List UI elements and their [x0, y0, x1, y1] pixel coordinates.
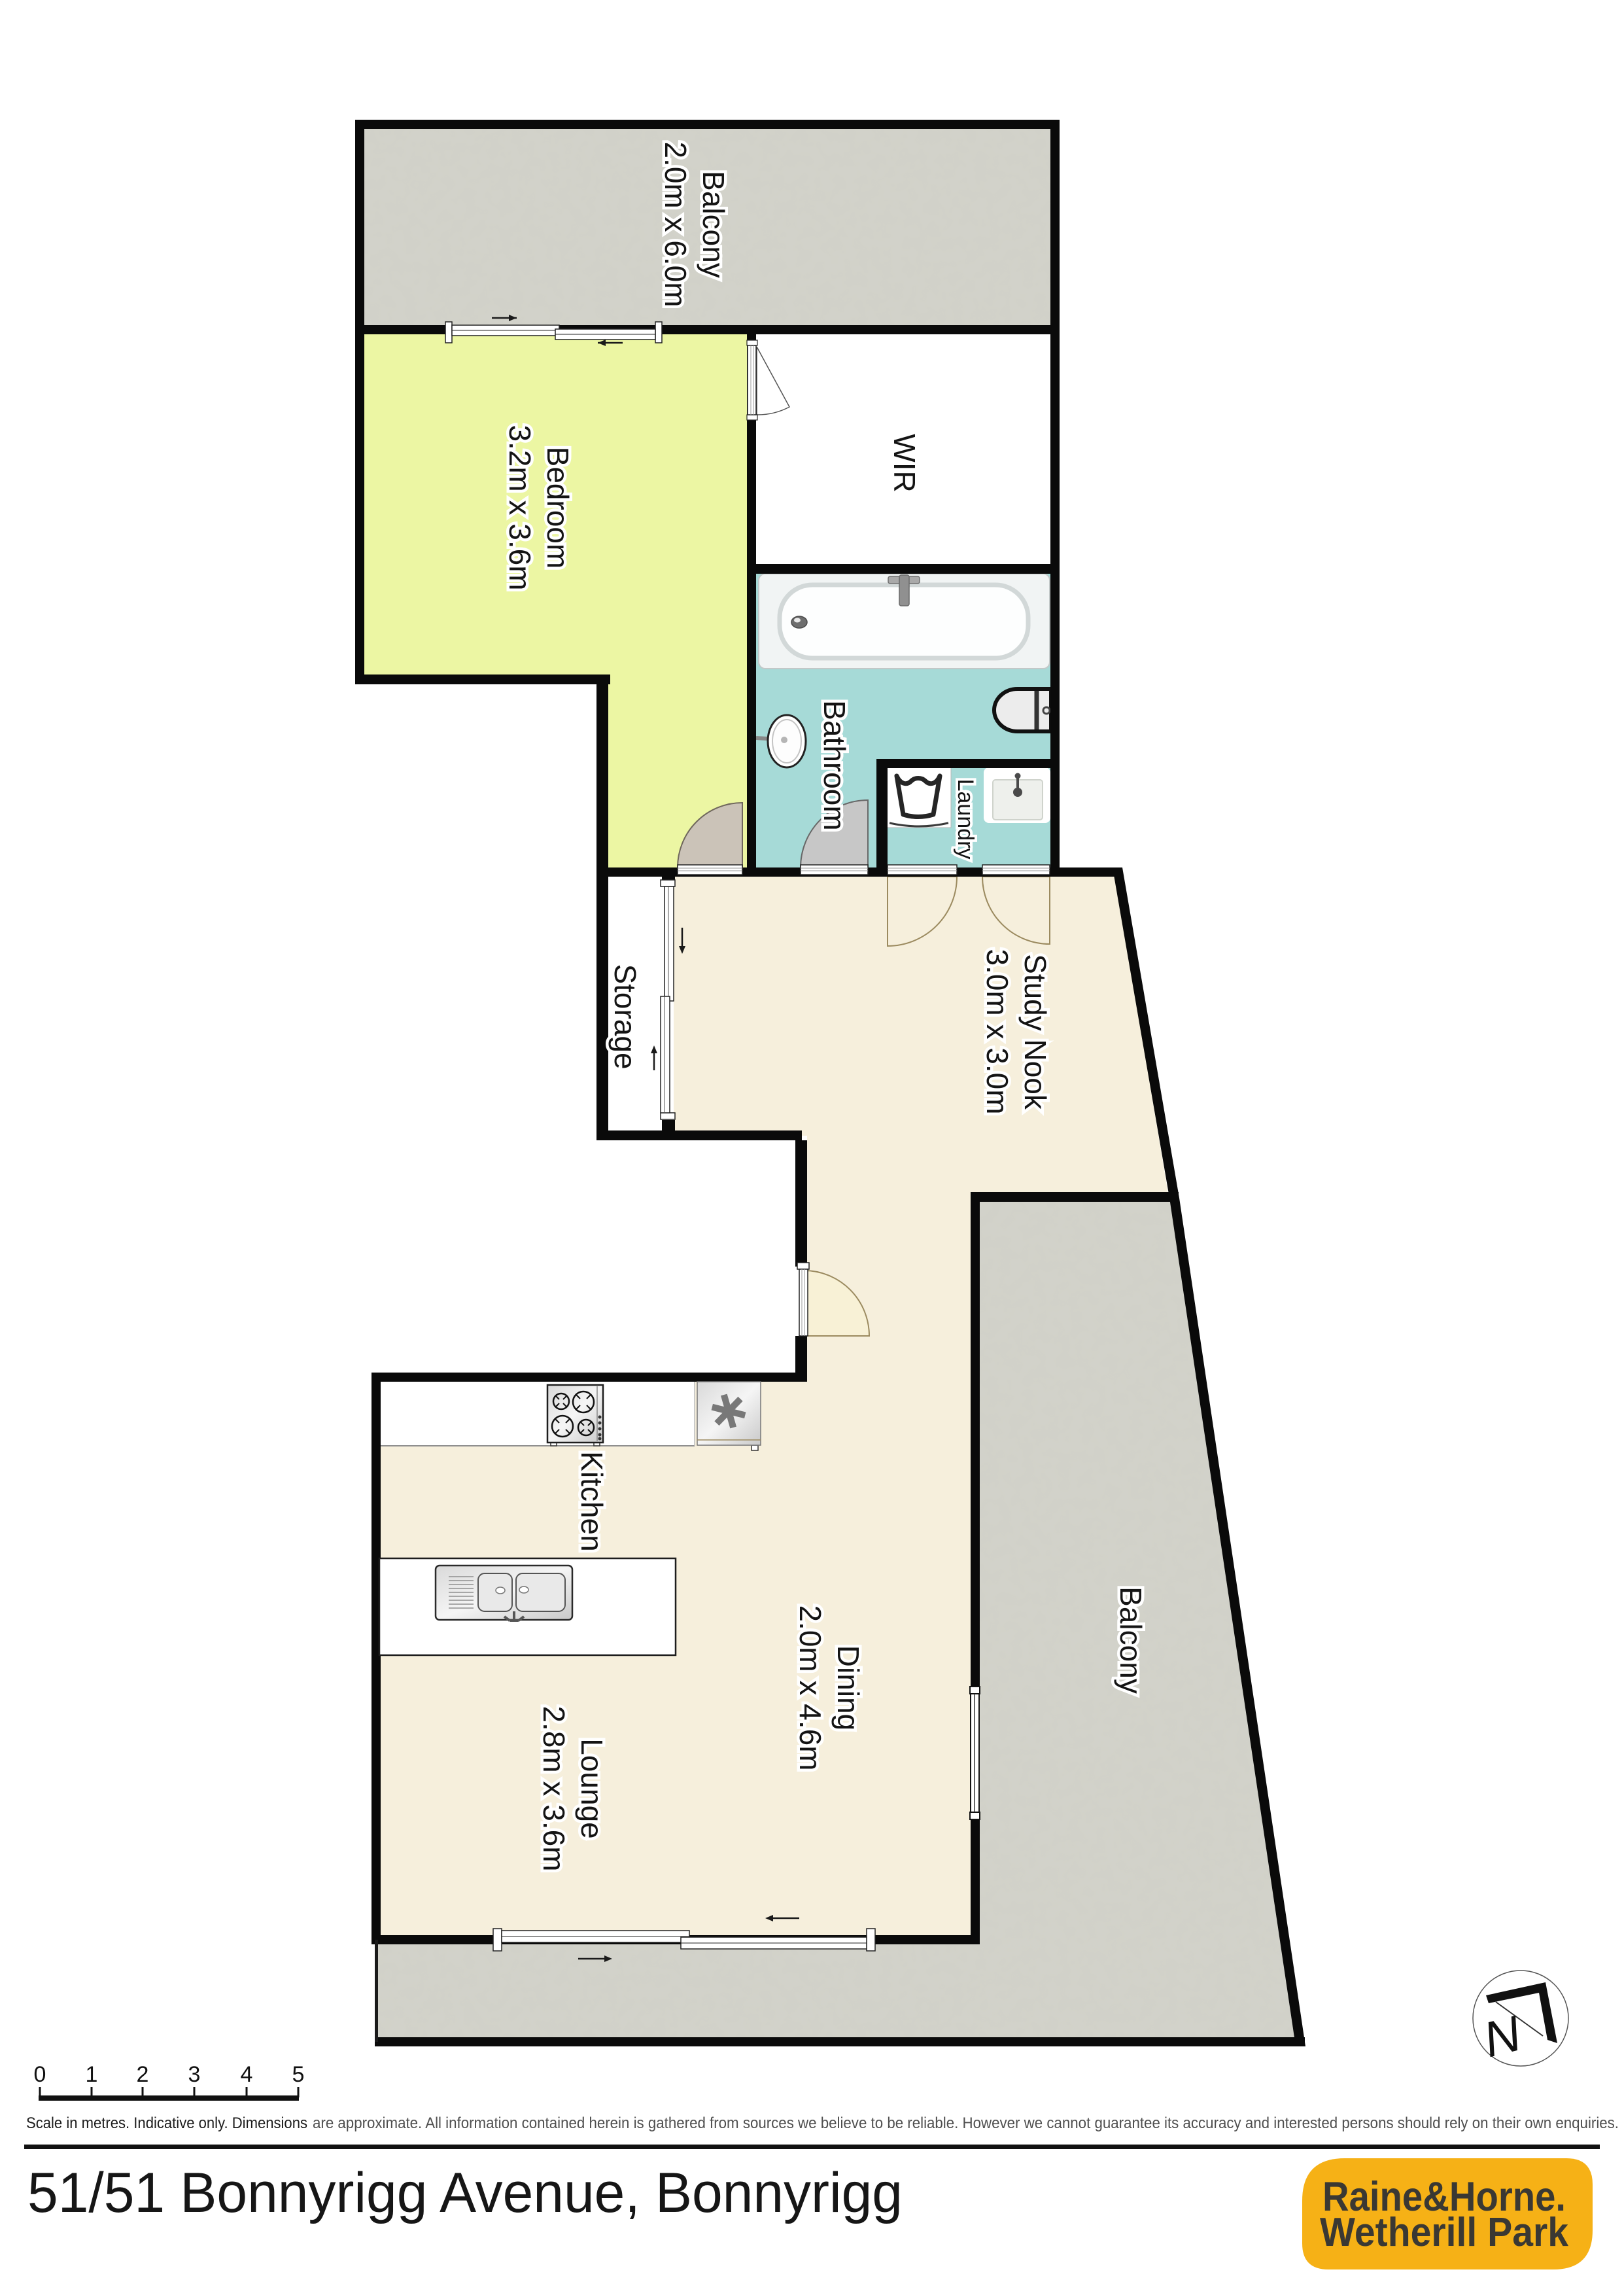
svg-text:3.2m x 3.6m: 3.2m x 3.6m	[503, 425, 537, 590]
svg-text:3.0m x 3.0m: 3.0m x 3.0m	[980, 949, 1014, 1114]
svg-text:2.0m x 6.0m: 2.0m x 6.0m	[659, 141, 693, 307]
svg-text:Scale in metres. Indicative on: Scale in metres. Indicative only. Dimens…	[26, 2114, 307, 2132]
svg-text:Bathroom: Bathroom	[818, 700, 852, 830]
svg-text:Wetherill Park: Wetherill Park	[1320, 2210, 1568, 2255]
svg-text:Balcony: Balcony	[1114, 1586, 1148, 1694]
svg-text:WIR: WIR	[888, 434, 922, 492]
svg-text:Laundry: Laundry	[953, 779, 978, 860]
svg-text:1: 1	[86, 2062, 98, 2087]
svg-text:5: 5	[292, 2062, 305, 2087]
svg-text:0: 0	[34, 2062, 46, 2087]
svg-text:Lounge: Lounge	[575, 1738, 609, 1839]
svg-text:Bedroom: Bedroom	[541, 447, 575, 569]
svg-text:2: 2	[137, 2062, 149, 2087]
svg-text:Kitchen: Kitchen	[575, 1451, 609, 1551]
svg-text:3: 3	[188, 2062, 201, 2087]
svg-text:2.0m x 4.6m: 2.0m x 4.6m	[793, 1605, 827, 1770]
svg-text:51/51 Bonnyrigg Avenue, Bonnyr: 51/51 Bonnyrigg Avenue, Bonnyrigg	[27, 2162, 903, 2224]
svg-text:Dining: Dining	[831, 1645, 865, 1730]
svg-text:Storage: Storage	[608, 964, 642, 1069]
svg-text:4: 4	[241, 2062, 253, 2087]
svg-text:Balcony: Balcony	[697, 171, 731, 278]
svg-text:Study Nook: Study Nook	[1018, 954, 1052, 1110]
svg-text:2.8m x 3.6m: 2.8m x 3.6m	[537, 1706, 571, 1871]
svg-text:are approximate. All informati: are approximate. All information contain…	[313, 2114, 1619, 2132]
